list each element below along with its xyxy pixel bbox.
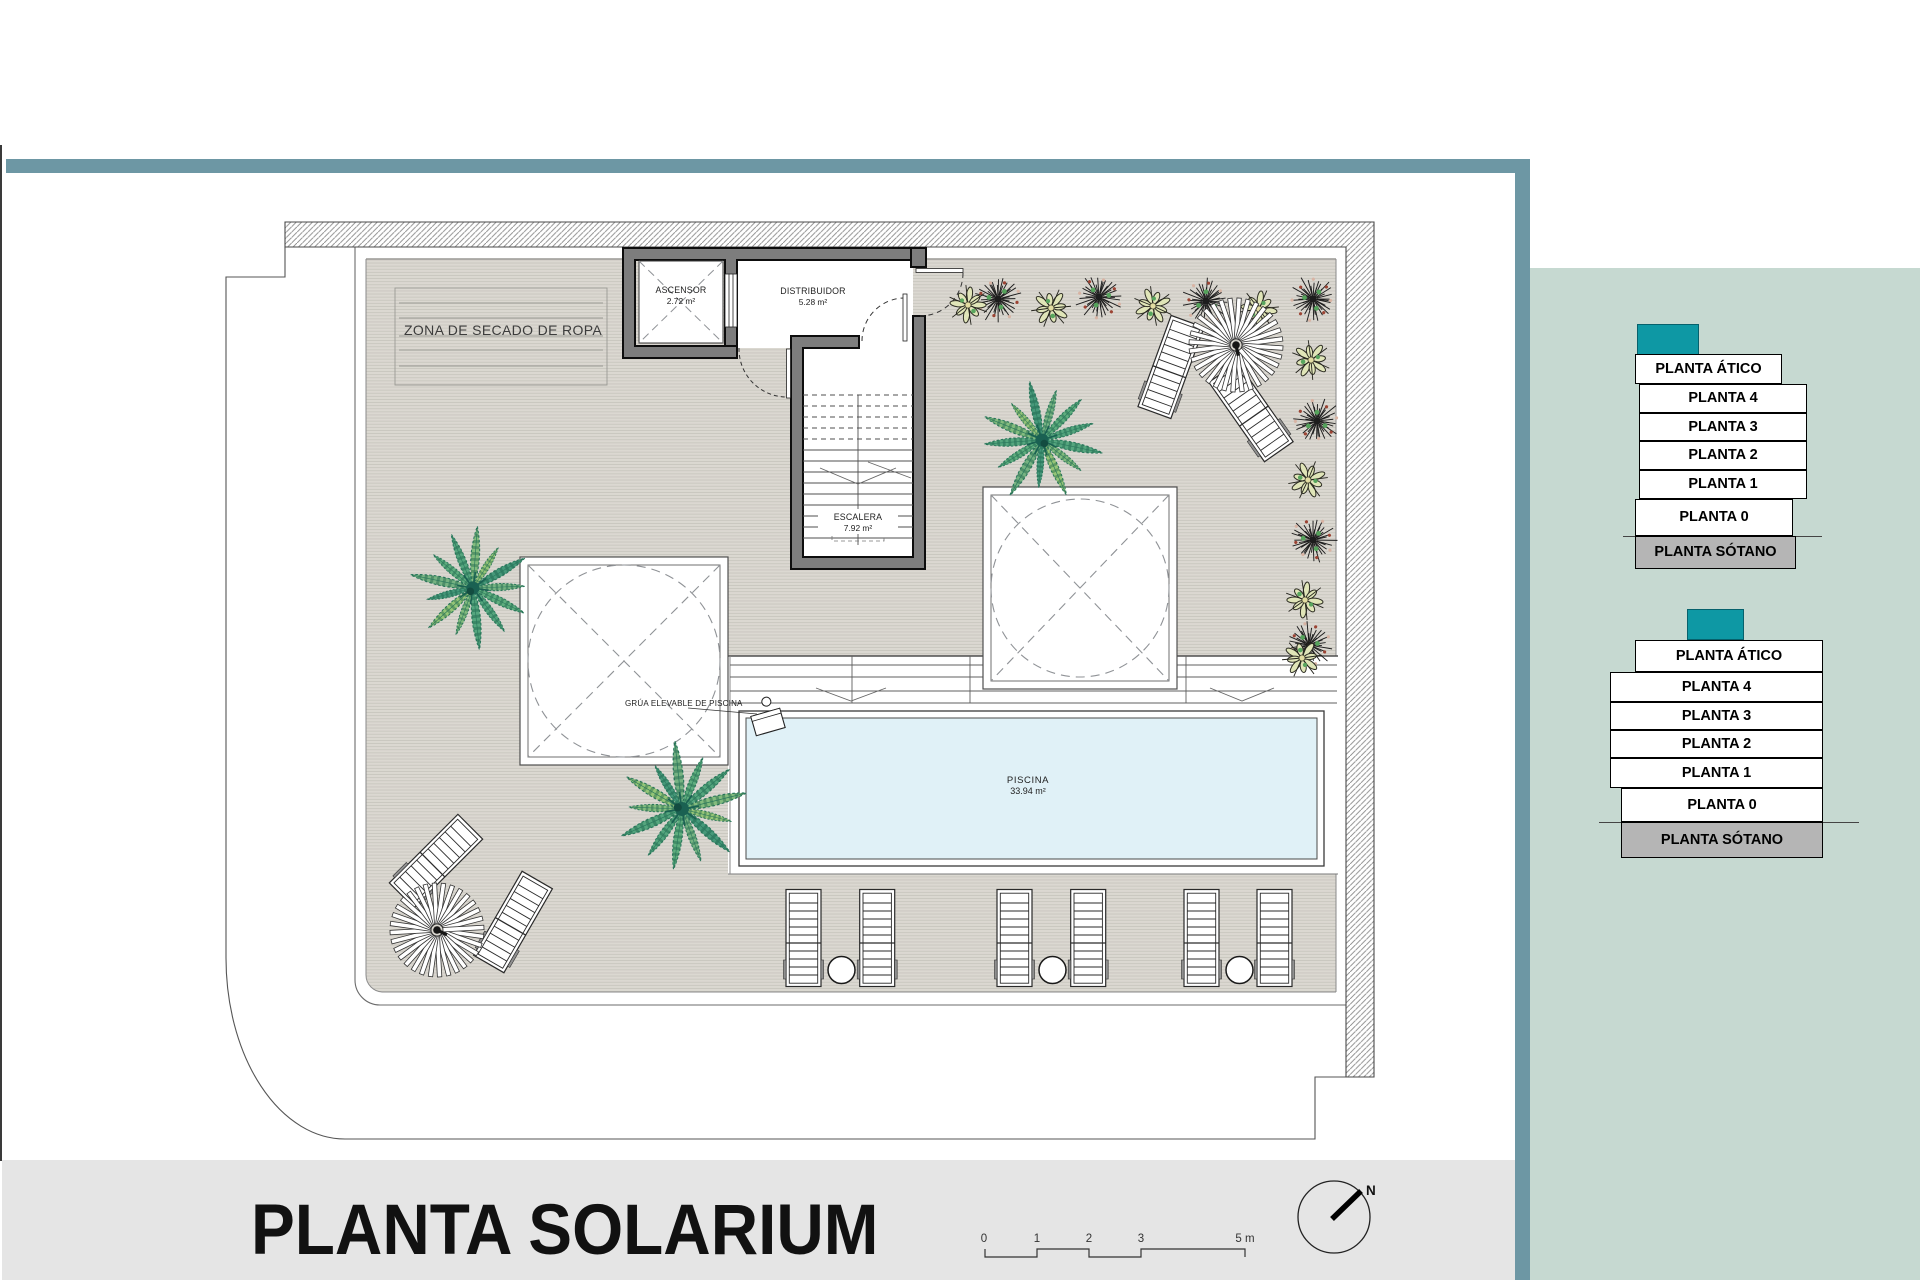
svg-text:ESCALERA: ESCALERA (834, 512, 883, 522)
svg-text:2: 2 (1086, 1233, 1092, 1245)
svg-text:2.72 m²: 2.72 m² (667, 296, 696, 306)
svg-text:5.28 m²: 5.28 m² (799, 297, 828, 307)
svg-text:ZONA DE SECADO DE ROPA: ZONA DE SECADO DE ROPA (404, 322, 602, 338)
svg-text:PISCINA: PISCINA (1007, 775, 1049, 786)
svg-text:GRÚA ELEVABLE DE PISCINA: GRÚA ELEVABLE DE PISCINA (625, 699, 743, 708)
svg-text:7.92 m²: 7.92 m² (844, 523, 873, 533)
svg-text:3: 3 (1138, 1233, 1144, 1245)
svg-text:0: 0 (981, 1233, 987, 1245)
svg-text:5 m: 5 m (1235, 1233, 1254, 1245)
svg-text:N: N (1366, 1183, 1376, 1198)
svg-text:33.94 m²: 33.94 m² (1010, 786, 1046, 796)
svg-text:DISTRIBUIDOR: DISTRIBUIDOR (780, 286, 845, 296)
svg-text:1: 1 (1034, 1233, 1040, 1245)
svg-text:ASCENSOR: ASCENSOR (656, 285, 707, 295)
